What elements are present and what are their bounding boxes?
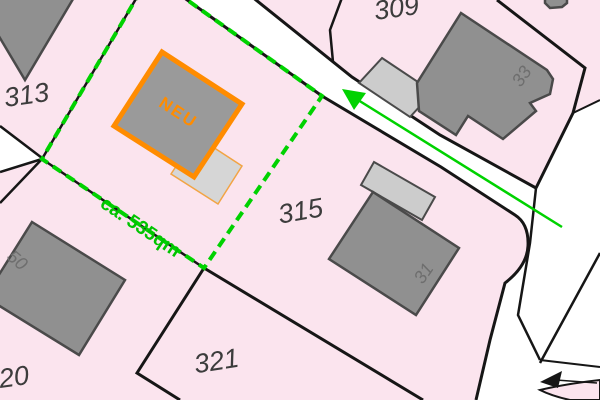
building-parcel-313 [0,0,76,80]
parcel-number-313: 313 [2,77,51,114]
site-plan-map: 313 309 315 321 320 33 31 50 NEU ca. 535… [0,0,600,400]
building-top-right [545,0,567,8]
building-house-50 [0,222,125,355]
boundary-320-321 [137,268,204,400]
boundary-309-west [330,0,343,62]
building-house-31 [329,192,459,315]
